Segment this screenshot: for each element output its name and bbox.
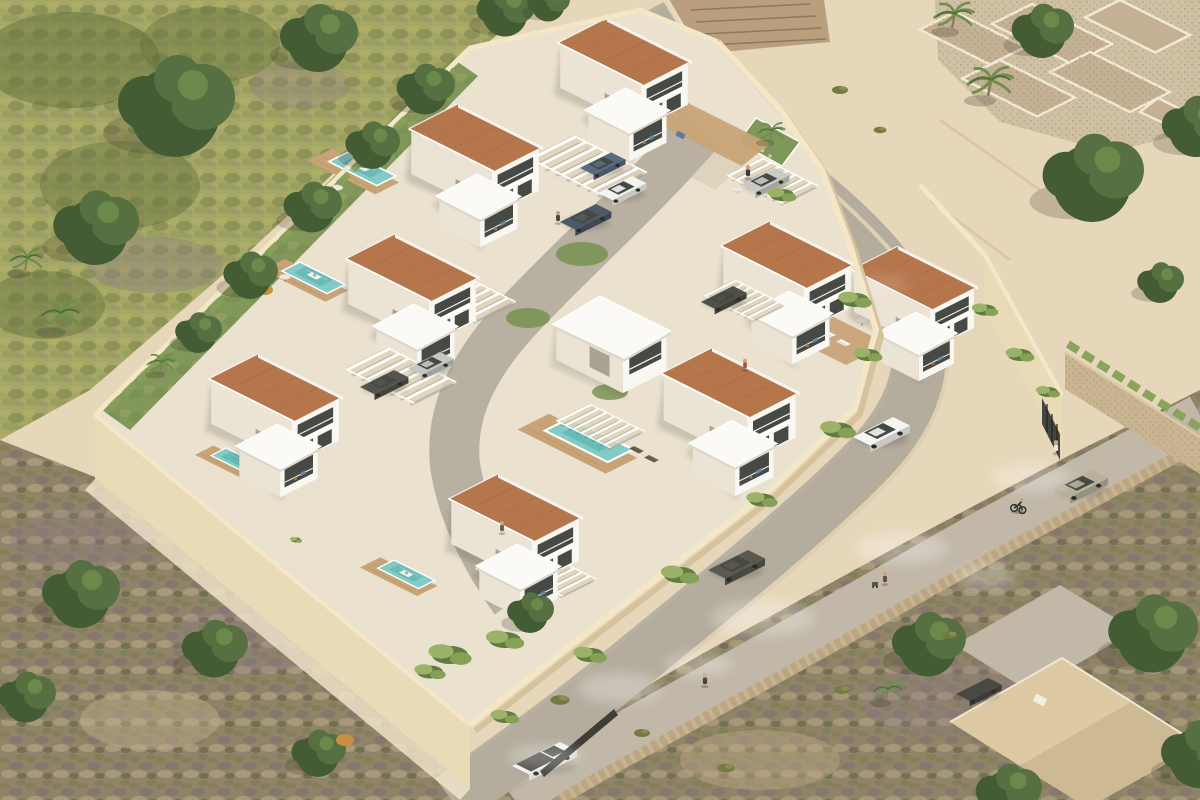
autumn-shrub [336, 734, 354, 746]
aerial-development-render [0, 0, 1200, 800]
